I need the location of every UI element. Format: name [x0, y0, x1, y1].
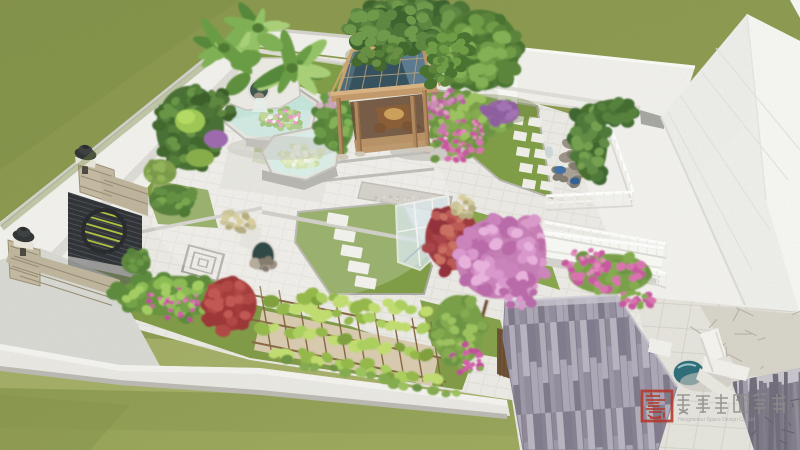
svg-text:Hengmeiour Space Design Co.: Hengmeiour Space Design Co.,Ltd [678, 417, 755, 423]
